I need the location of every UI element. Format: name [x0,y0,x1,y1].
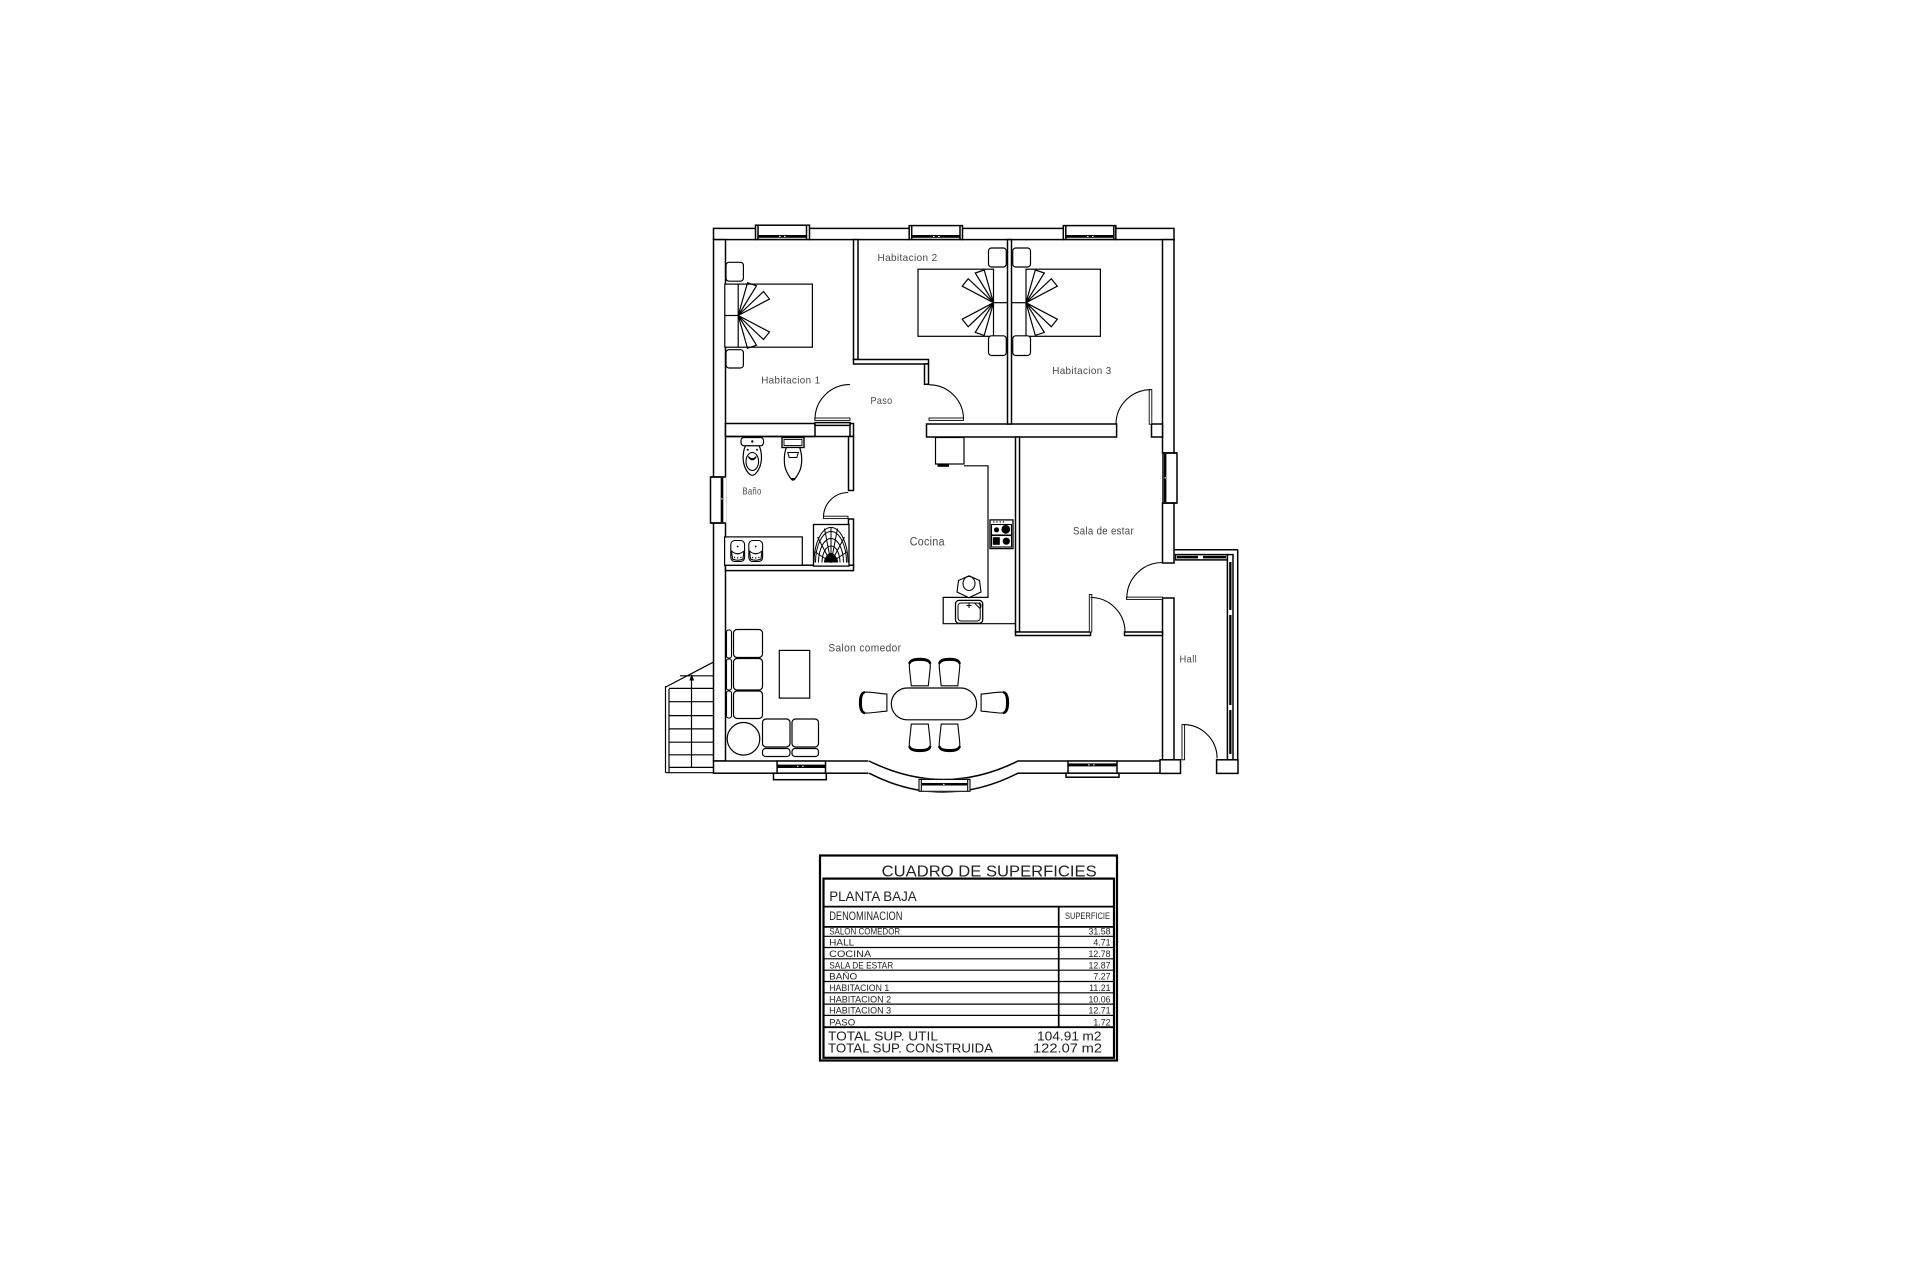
svg-text:Hall: Hall [1180,655,1198,666]
svg-text:12.71: 12.71 [1088,1006,1110,1016]
svg-text:12.87: 12.87 [1088,960,1110,970]
svg-text:Cocina: Cocina [910,537,945,549]
svg-text:COCINA: COCINA [829,949,871,959]
svg-text:Habitacion 1: Habitacion 1 [761,375,820,387]
svg-text:TOTAL SUP. CONSTRUIDA: TOTAL SUP. CONSTRUIDA [828,1041,993,1056]
svg-text:10.06: 10.06 [1088,994,1110,1004]
svg-text:Paso: Paso [871,395,893,407]
svg-text:HABITACION 3: HABITACION 3 [829,1006,891,1016]
svg-text:1.72: 1.72 [1093,1017,1110,1027]
svg-text:CUADRO DE SUPERFICIES: CUADRO DE SUPERFICIES [882,864,1097,881]
svg-text:BAÑO: BAÑO [829,972,857,982]
svg-text:PASO: PASO [829,1017,855,1027]
svg-text:31.58: 31.58 [1088,927,1110,937]
svg-text:Habitacion 2: Habitacion 2 [878,252,938,264]
svg-text:HALL: HALL [829,938,854,948]
svg-text:Sala de estar: Sala de estar [1073,526,1134,538]
svg-text:SUPERFICIE: SUPERFICIE [1065,911,1110,922]
svg-text:12.78: 12.78 [1088,949,1110,959]
svg-text:Salon comedor: Salon comedor [828,643,901,655]
svg-text:PLANTA BAJA: PLANTA BAJA [829,888,917,904]
svg-text:122.07 m2: 122.07 m2 [1033,1041,1102,1056]
svg-text:7.27: 7.27 [1093,972,1110,982]
svg-text:11.21: 11.21 [1089,983,1110,993]
svg-text:Baño: Baño [743,486,762,498]
svg-text:Habitacion 3: Habitacion 3 [1052,365,1111,377]
svg-text:SALA DE ESTAR: SALA DE ESTAR [829,960,893,970]
svg-text:4.71: 4.71 [1093,938,1110,948]
svg-text:HABITACION 2: HABITACION 2 [829,994,891,1004]
svg-text:HABITACION 1: HABITACION 1 [829,983,889,993]
svg-text:SALON COMEDOR: SALON COMEDOR [829,927,900,937]
svg-text:DENOMINACION: DENOMINACION [829,911,902,923]
